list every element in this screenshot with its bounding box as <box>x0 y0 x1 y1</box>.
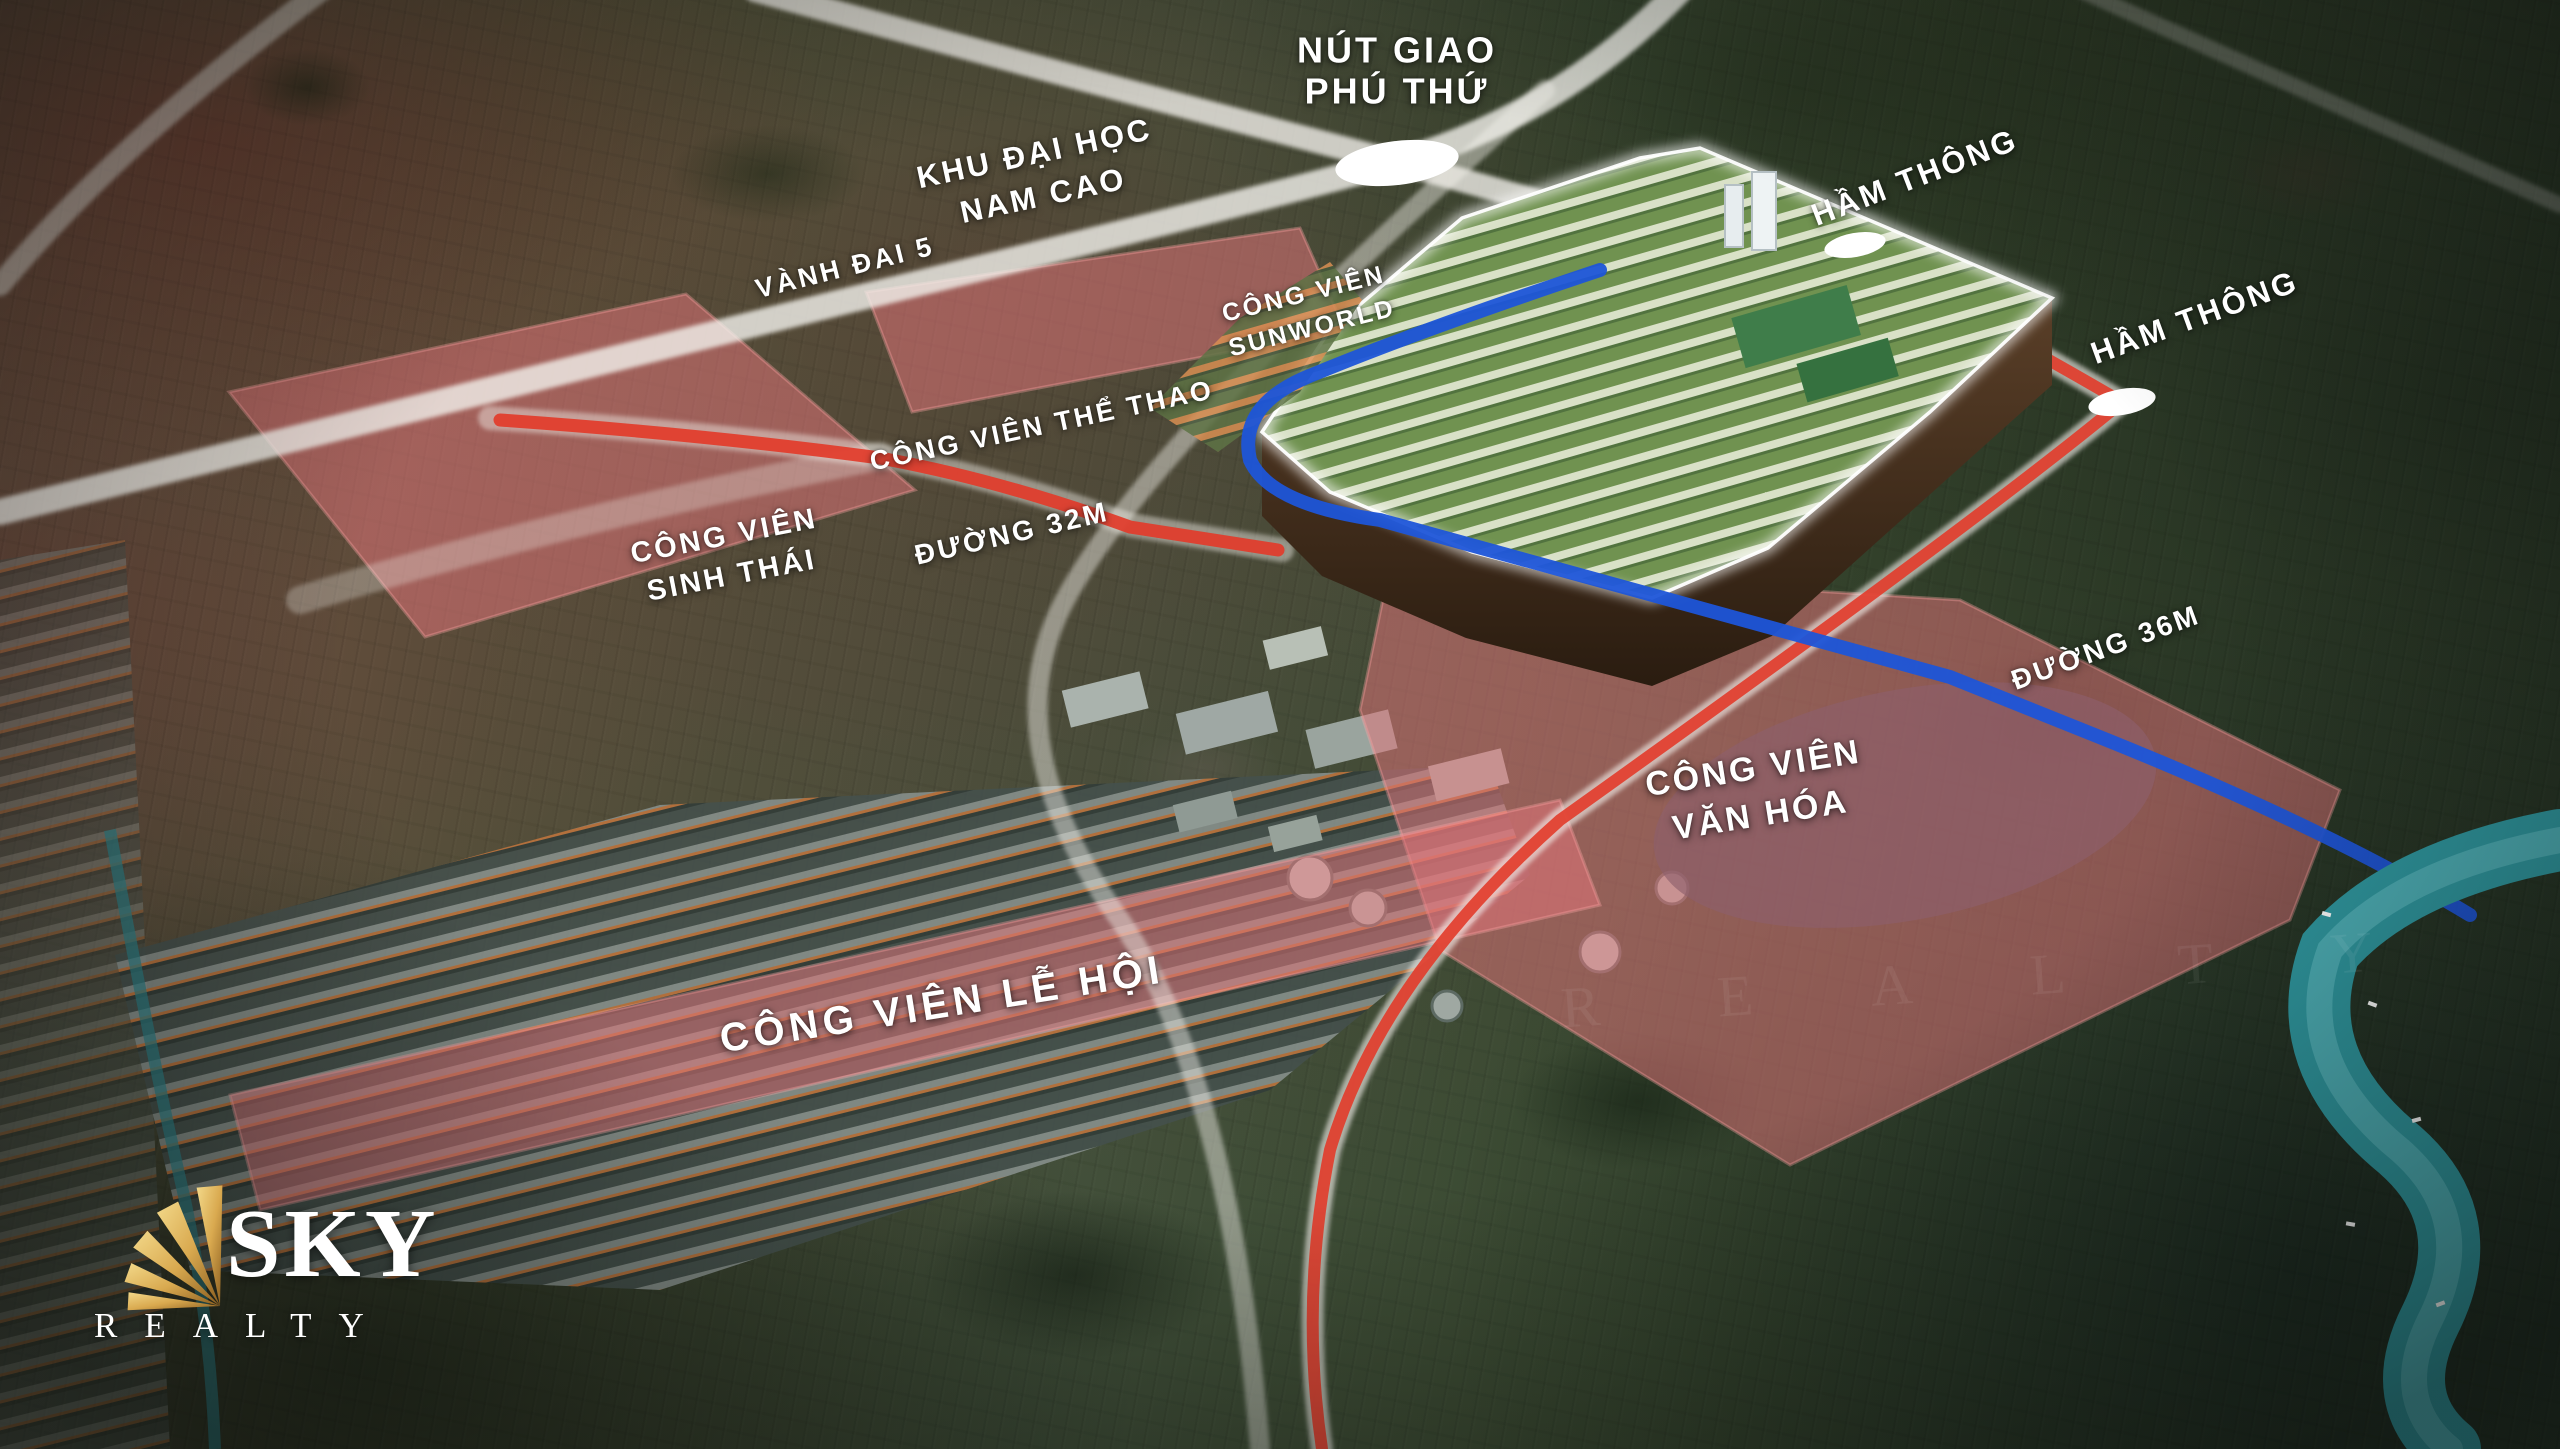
label-line: PHÚ THỨ <box>1297 71 1497 112</box>
label-line: NÚT GIAO <box>1297 30 1497 71</box>
sky-realty-logo: SKY REALTY <box>88 1168 428 1353</box>
masterplan-scene: REALTY NÚT GIAO PHÚ THỨ KHU ĐẠI HỌC NAM … <box>0 0 2560 1449</box>
logo-sub-text: REALTY <box>94 1306 391 1346</box>
logo-sunburst-icon <box>88 1174 233 1319</box>
label-nut-giao-phu-thu: NÚT GIAO PHÚ THỨ <box>1297 30 1497 113</box>
logo-brand-text: SKY <box>226 1188 440 1300</box>
